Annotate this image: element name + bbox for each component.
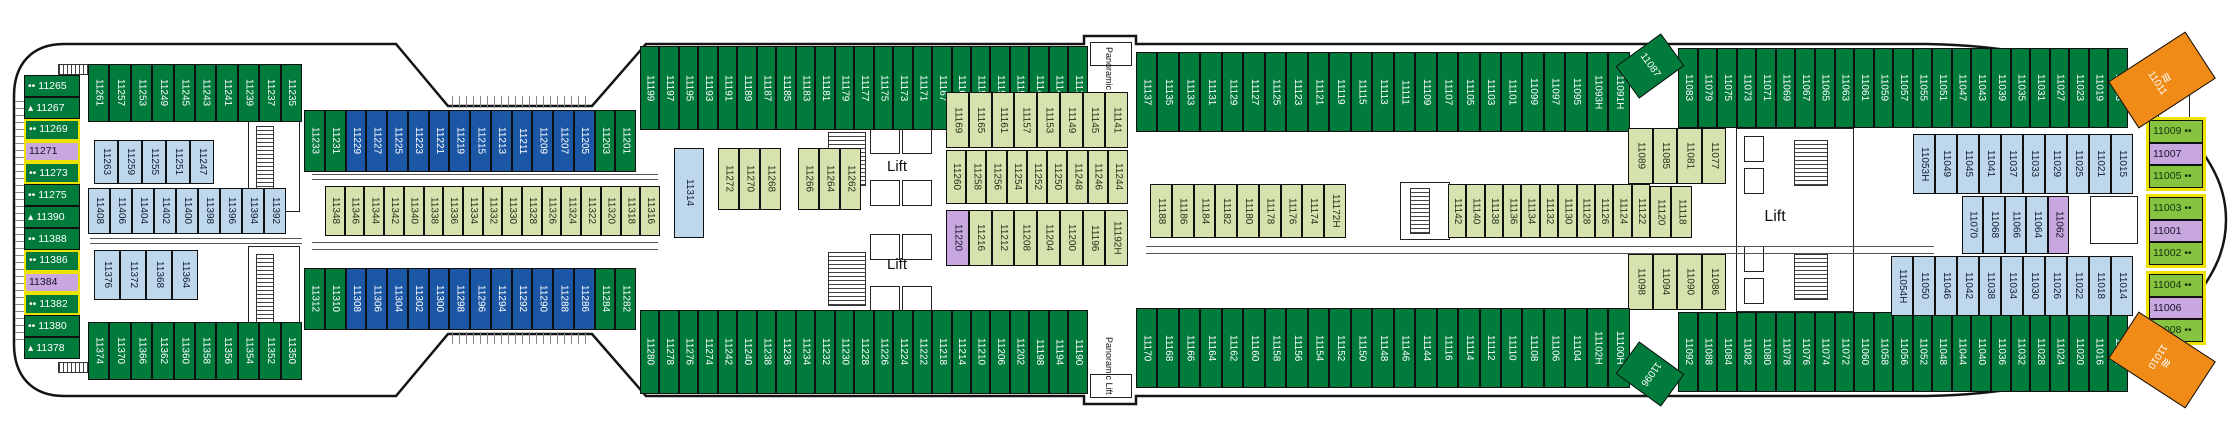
cabin-11320: 11320 bbox=[601, 186, 621, 236]
balcony-dividers bbox=[15, 100, 24, 340]
cabin-11022: 11022 bbox=[2067, 256, 2089, 316]
cabin-11135: 11135 bbox=[1157, 52, 1178, 132]
cabin-11326: 11326 bbox=[542, 186, 562, 236]
cabin-11179: 11179 bbox=[835, 46, 854, 130]
cabin-11222: 11222 bbox=[913, 310, 932, 394]
cabin-11250: 11250 bbox=[1047, 150, 1067, 204]
cabin-11127: 11127 bbox=[1243, 52, 1264, 132]
cabin-11084: 11084 bbox=[1717, 312, 1737, 392]
cabin-11231: 11231 bbox=[325, 110, 346, 172]
right-blue-upper: 11053H1104911045110411103711033110291102… bbox=[1913, 134, 2133, 194]
cabin-11244: 11244 bbox=[1108, 150, 1128, 204]
cabin-11215: 11215 bbox=[470, 110, 491, 172]
cabin-11196: 11196 bbox=[1083, 210, 1106, 266]
cabin-11272: 11272 bbox=[718, 148, 739, 210]
cabin-11160: 11160 bbox=[1243, 308, 1264, 388]
mid-olive-row-2: 1118811186111841118211180111781117611174… bbox=[1150, 184, 1346, 238]
stern-column: •• 11265▴ 11267•• 1126911271•• 11273•• 1… bbox=[24, 75, 80, 359]
cabin-11358: 11358 bbox=[195, 322, 216, 380]
cabin-11044: 11044 bbox=[1952, 312, 1972, 392]
cabin-11318: 11318 bbox=[621, 186, 641, 236]
cabin-11237: 11237 bbox=[259, 64, 280, 122]
cabin-11055: 11055 bbox=[1913, 48, 1933, 128]
right-olive-3: 1122011216112121120811204112001119611192… bbox=[946, 210, 1128, 266]
lift-car bbox=[1744, 168, 1764, 194]
cabin-11035: 11035 bbox=[2011, 48, 2031, 128]
cabin-11076: 11076 bbox=[1795, 312, 1815, 392]
cabin-11364: 11364 bbox=[172, 250, 198, 300]
cabin-11230: 11230 bbox=[835, 310, 854, 394]
cabin-11275: •• 11275 bbox=[24, 184, 80, 206]
cabin-11016: 11016 bbox=[2089, 312, 2109, 392]
cabin-11205: 11205 bbox=[574, 110, 595, 172]
cabin-11066: 11066 bbox=[2005, 196, 2026, 254]
cabin-11314: 11314 bbox=[674, 148, 704, 238]
lift-car bbox=[902, 128, 932, 154]
lift-label: Lift bbox=[1748, 206, 1802, 228]
cabin-11157: 11157 bbox=[1014, 92, 1037, 148]
corridor bbox=[1146, 246, 1934, 254]
cabin-11240: 11240 bbox=[737, 310, 756, 394]
top-row-b: 1113711135111331113111129111271112511123… bbox=[1136, 52, 1630, 132]
lift-car bbox=[1744, 278, 1764, 304]
cabin-11037: 11037 bbox=[2001, 134, 2023, 194]
stairs-midship-lower bbox=[828, 252, 866, 306]
cabin-11154: 11154 bbox=[1308, 308, 1329, 388]
lift-label: Lift bbox=[874, 156, 920, 176]
cabin-11061: 11061 bbox=[1854, 48, 1874, 128]
cabin-11146: 11146 bbox=[1394, 308, 1415, 388]
cabin-11227: 11227 bbox=[366, 110, 387, 172]
cabin-11298: 11298 bbox=[449, 268, 470, 330]
cabin-11026: 11026 bbox=[2045, 256, 2067, 316]
cabin-11370: 11370 bbox=[109, 322, 130, 380]
cabin-11264: 11264 bbox=[819, 148, 840, 210]
cabin-11101: 11101 bbox=[1501, 52, 1522, 132]
cabin-11182: 11182 bbox=[1215, 184, 1237, 238]
top-row-c: 1108311079110751107311071110691106711065… bbox=[1678, 48, 2128, 128]
cabin-11020: 11020 bbox=[2069, 312, 2089, 392]
cabin-11103: 11103 bbox=[1480, 52, 1501, 132]
cabin-11041: 11041 bbox=[1979, 134, 2001, 194]
stairs-stern-lower bbox=[256, 254, 274, 332]
bow-group-2: 11003 ••1100111002 •• bbox=[2146, 194, 2206, 268]
cabin-11198: 11198 bbox=[1029, 310, 1048, 394]
cabin-11259: 11259 bbox=[118, 140, 142, 184]
cabin-11057: 11057 bbox=[1893, 48, 1913, 128]
cabin-11308: 11308 bbox=[346, 268, 367, 330]
lift-car bbox=[1744, 136, 1764, 162]
right-blue-center: 1107011068110661106411062 bbox=[1962, 196, 2069, 254]
cabin-11080: 11080 bbox=[1756, 312, 1776, 392]
cabin-11221: 11221 bbox=[429, 110, 450, 172]
cabin-11310: 11310 bbox=[325, 268, 346, 330]
cabin-11352: 11352 bbox=[259, 322, 280, 380]
cabin-11122: 11122 bbox=[1632, 184, 1650, 238]
mid-olive-row: 1134811346113441134211340113381133611334… bbox=[325, 186, 660, 236]
cabin-11145: 11145 bbox=[1083, 92, 1106, 148]
cabin-11185: 11185 bbox=[776, 46, 795, 130]
cabin-11178: 11178 bbox=[1259, 184, 1281, 238]
cabin-11158: 11158 bbox=[1265, 308, 1286, 388]
cabin-11286: 11286 bbox=[574, 268, 595, 330]
cabin-11003: 11003 •• bbox=[2149, 197, 2203, 220]
cabin-11392: 11392 bbox=[264, 188, 286, 234]
cabin-11187: 11187 bbox=[757, 46, 776, 130]
cabin-11005: 11005 •• bbox=[2149, 165, 2203, 188]
cabin-11184: 11184 bbox=[1194, 184, 1216, 238]
cabin-11077: 11077 bbox=[1702, 128, 1727, 184]
cabin-11265: •• 11265 bbox=[24, 75, 80, 97]
cabin-11150: 11150 bbox=[1351, 308, 1372, 388]
cabin-11234: 11234 bbox=[796, 310, 815, 394]
cabin-11354: 11354 bbox=[238, 322, 259, 380]
cabin-11394: 11394 bbox=[242, 188, 264, 234]
cabin-11247: 11247 bbox=[190, 140, 214, 184]
cabin-11172H: 11172H bbox=[1324, 184, 1346, 238]
mid-olive-b: 112661126411262 bbox=[798, 148, 861, 210]
bottom-row-b: 1117011168111661116411162111601115811156… bbox=[1136, 308, 1630, 388]
cabin-11053H: 11053H bbox=[1913, 134, 1935, 194]
cabin-11195: 11195 bbox=[679, 46, 698, 130]
cabin-11174: 11174 bbox=[1302, 184, 1324, 238]
cabin-11104: 11104 bbox=[1565, 308, 1586, 388]
cabin-11029: 11029 bbox=[2045, 134, 2067, 194]
cabin-11070: 11070 bbox=[1962, 196, 1983, 254]
cabin-11065: 11065 bbox=[1815, 48, 1835, 128]
cabin-11368: 11368 bbox=[146, 250, 172, 300]
cabin-11340: 11340 bbox=[404, 186, 424, 236]
cabin-11402: 11402 bbox=[154, 188, 176, 234]
cabin-11294: 11294 bbox=[491, 268, 512, 330]
cabin-11102H: 11102H bbox=[1587, 308, 1608, 388]
cabin-11032: 11032 bbox=[2011, 312, 2031, 392]
cabin-11199: 11199 bbox=[640, 46, 659, 130]
cabin-11126: 11126 bbox=[1595, 184, 1613, 238]
cabin-11019: 11019 bbox=[2089, 48, 2109, 128]
cabin-11144: 11144 bbox=[1415, 308, 1436, 388]
lift-car bbox=[902, 286, 932, 312]
cabin-11042: 11042 bbox=[1957, 256, 1979, 316]
cabin-11052: 11052 bbox=[1913, 312, 1933, 392]
stern-deck-grate-bottom bbox=[58, 362, 92, 373]
cabin-11060: 11060 bbox=[1854, 312, 1874, 392]
cabin-11093H: 11093H bbox=[1587, 52, 1608, 132]
cabin-11086: 11086 bbox=[1702, 254, 1727, 310]
cabin-11254: 11254 bbox=[1007, 150, 1027, 204]
cabin-11258: 11258 bbox=[966, 150, 986, 204]
cabin-11048: 11048 bbox=[1932, 312, 1952, 392]
cabin-11040: 11040 bbox=[1971, 312, 1991, 392]
cabin-11290: 11290 bbox=[532, 268, 553, 330]
cabin-11004: 11004 •• bbox=[2149, 274, 2203, 297]
cabin-11220: 11220 bbox=[946, 210, 969, 266]
cabin-11396: 11396 bbox=[220, 188, 242, 234]
bow-service-room bbox=[2090, 196, 2138, 244]
cabin-11137: 11137 bbox=[1136, 52, 1157, 132]
cabin-11047: 11047 bbox=[1952, 48, 1972, 128]
cabin-11404: 11404 bbox=[132, 188, 154, 234]
cabin-11067: 11067 bbox=[1795, 48, 1815, 128]
cabin-11210: 11210 bbox=[971, 310, 990, 394]
cabin-11074: 11074 bbox=[1815, 312, 1835, 392]
cabin-11176: 11176 bbox=[1281, 184, 1303, 238]
cabin-11036: 11036 bbox=[1991, 312, 2011, 392]
cabin-11031: 11031 bbox=[2030, 48, 2050, 128]
cabin-11390: ▴ 11390 bbox=[24, 206, 80, 228]
cabin-11374: 11374 bbox=[88, 322, 109, 380]
cabin-11113: 11113 bbox=[1372, 52, 1393, 132]
cabin-11260: 11260 bbox=[946, 150, 966, 204]
cabin-11062: 11062 bbox=[2048, 196, 2069, 254]
cabin-11181: 11181 bbox=[815, 46, 834, 130]
bottom-inset-row: 1131211310113081130611304113021130011298… bbox=[304, 268, 636, 330]
cabin-11162: 11162 bbox=[1222, 308, 1243, 388]
cabin-11350: 11350 bbox=[281, 322, 302, 380]
cabin-11266: 11266 bbox=[798, 148, 819, 210]
lift-car bbox=[870, 180, 900, 206]
cabin-11238: 11238 bbox=[757, 310, 776, 394]
cabin-11015: 11015 bbox=[2111, 134, 2133, 194]
cabin-11183: 11183 bbox=[796, 46, 815, 130]
cabin-11007: 11007 bbox=[2149, 143, 2203, 166]
cabin-11282: 11282 bbox=[615, 268, 636, 330]
cabin-11348: 11348 bbox=[325, 186, 345, 236]
cabin-11056: 11056 bbox=[1893, 312, 1913, 392]
cabin-11180: 11180 bbox=[1237, 184, 1259, 238]
cabin-11038: 11038 bbox=[1979, 256, 2001, 316]
cabin-11218: 11218 bbox=[932, 310, 951, 394]
cabin-11094: 11094 bbox=[1653, 254, 1678, 310]
cabin-11342: 11342 bbox=[384, 186, 404, 236]
cabin-11216: 11216 bbox=[969, 210, 992, 266]
cabin-11098: 11098 bbox=[1628, 254, 1653, 310]
cabin-11356: 11356 bbox=[216, 322, 237, 380]
cabin-11346: 11346 bbox=[345, 186, 365, 236]
stairs-mid bbox=[1410, 188, 1430, 234]
lift-olive-top: 11089110851108111077 bbox=[1628, 128, 1726, 184]
cabin-11212: 11212 bbox=[992, 210, 1015, 266]
cabin-11239: 11239 bbox=[238, 64, 259, 122]
cabin-11274: 11274 bbox=[698, 310, 717, 394]
cabin-11006: 11006 bbox=[2149, 297, 2203, 320]
right-blue-lower: 11054H1105011046110421103811034110301102… bbox=[1891, 256, 2133, 316]
cabin-11278: 11278 bbox=[659, 310, 678, 394]
cabin-11114: 11114 bbox=[1458, 308, 1479, 388]
cabin-11253: 11253 bbox=[131, 64, 152, 122]
cabin-11068: 11068 bbox=[1983, 196, 2004, 254]
cabin-11207: 11207 bbox=[553, 110, 574, 172]
panoramic-lift-label: Panoramic Lift bbox=[1087, 336, 1131, 396]
cabin-11226: 11226 bbox=[874, 310, 893, 394]
cabin-11116: 11116 bbox=[1437, 308, 1458, 388]
cabin-11362: 11362 bbox=[152, 322, 173, 380]
cabin-11156: 11156 bbox=[1286, 308, 1307, 388]
cabin-11233: 11233 bbox=[304, 110, 325, 172]
cabin-11169: 11169 bbox=[946, 92, 969, 148]
cabin-11141: 11141 bbox=[1105, 92, 1128, 148]
cabin-11248: 11248 bbox=[1067, 150, 1087, 204]
cabin-11025: 11025 bbox=[2067, 134, 2089, 194]
cabin-11132: 11132 bbox=[1540, 184, 1558, 238]
cabin-11268: 11268 bbox=[760, 148, 781, 210]
cabin-11089: 11089 bbox=[1628, 128, 1653, 184]
corridor bbox=[312, 174, 658, 180]
top-inset-row: 1123311231112291122711225112231122111219… bbox=[304, 110, 636, 172]
mid-olive-a: 112721127011268 bbox=[718, 148, 781, 210]
cabin-11115: 11115 bbox=[1351, 52, 1372, 132]
right-olive-1: 1116911165111611115711153111491114511141 bbox=[946, 92, 1128, 148]
cabin-11202: 11202 bbox=[1010, 310, 1029, 394]
cabin-11273: •• 11273 bbox=[24, 162, 80, 184]
cabin-11120: 11120 bbox=[1650, 186, 1671, 238]
cabin-11134: 11134 bbox=[1521, 184, 1539, 238]
cabin-11001: 11001 bbox=[2149, 220, 2203, 243]
cabin-11209: 11209 bbox=[532, 110, 553, 172]
cabin-11027: 11027 bbox=[2050, 48, 2070, 128]
cabin-11400: 11400 bbox=[176, 188, 198, 234]
cabin-11316: 11316 bbox=[640, 186, 660, 236]
cabin-11224: 11224 bbox=[893, 310, 912, 394]
cabin-11204: 11204 bbox=[1037, 210, 1060, 266]
cabin-11054H: 11054H bbox=[1891, 256, 1913, 316]
cabin-11292: 11292 bbox=[512, 268, 533, 330]
cabin-11124: 11124 bbox=[1613, 184, 1631, 238]
cabin-11186: 11186 bbox=[1172, 184, 1194, 238]
cabin-11296: 11296 bbox=[470, 268, 491, 330]
cabin-11063: 11063 bbox=[1835, 48, 1855, 128]
cabin-11119: 11119 bbox=[1329, 52, 1350, 132]
cabin-11245: 11245 bbox=[174, 64, 195, 122]
cabin-11075: 11075 bbox=[1717, 48, 1737, 128]
cabin-11360: 11360 bbox=[174, 322, 195, 380]
cabin-11408: 11408 bbox=[88, 188, 110, 234]
cabin-11152: 11152 bbox=[1329, 308, 1350, 388]
deck-plan: •• 11265▴ 11267•• 1126911271•• 11273•• 1… bbox=[0, 0, 2232, 440]
cabin-11228: 11228 bbox=[854, 310, 873, 394]
cabin-11177: 11177 bbox=[854, 46, 873, 130]
cabin-11232: 11232 bbox=[815, 310, 834, 394]
cabin-11314-block: 11314 bbox=[674, 148, 704, 238]
cabin-11242: 11242 bbox=[718, 310, 737, 394]
cabin-11246: 11246 bbox=[1088, 150, 1108, 204]
cabin-11173: 11173 bbox=[893, 46, 912, 130]
cabin-11276: 11276 bbox=[679, 310, 698, 394]
cabin-11334: 11334 bbox=[463, 186, 483, 236]
cabin-11332: 11332 bbox=[483, 186, 503, 236]
cabin-11002: 11002 •• bbox=[2149, 242, 2203, 265]
stern-bottom-row: 1137411370113661136211360113581135611354… bbox=[88, 322, 302, 380]
cabin-11261: 11261 bbox=[88, 64, 109, 122]
cabin-11109: 11109 bbox=[1415, 52, 1436, 132]
cabin-11197: 11197 bbox=[659, 46, 678, 130]
cabin-11039: 11039 bbox=[1991, 48, 2011, 128]
cabin-11267: ▴ 11267 bbox=[24, 97, 80, 119]
cabin-11121: 11121 bbox=[1308, 52, 1329, 132]
cabin-11193: 11193 bbox=[698, 46, 717, 130]
cabin-11306: 11306 bbox=[366, 268, 387, 330]
cabin-11105: 11105 bbox=[1458, 52, 1479, 132]
cabin-11092: 11092 bbox=[1678, 312, 1698, 392]
cabin-11064: 11064 bbox=[2026, 196, 2047, 254]
cabin-11194: 11194 bbox=[1049, 310, 1068, 394]
cabin-11376: 11376 bbox=[94, 250, 120, 300]
cabin-11191: 11191 bbox=[718, 46, 737, 130]
cabin-11129: 11129 bbox=[1222, 52, 1243, 132]
lower-blue-row: 11376113721136811364 bbox=[94, 250, 198, 300]
cabin-11130: 11130 bbox=[1558, 184, 1576, 238]
cabin-11206: 11206 bbox=[990, 310, 1009, 394]
cabin-11336: 11336 bbox=[443, 186, 463, 236]
cabin-11338: 11338 bbox=[424, 186, 444, 236]
cabin-11079: 11079 bbox=[1698, 48, 1718, 128]
cabin-11236: 11236 bbox=[776, 310, 795, 394]
cabin-11241: 11241 bbox=[216, 64, 237, 122]
cabin-11118: 11118 bbox=[1671, 186, 1692, 238]
cabin-11168: 11168 bbox=[1157, 308, 1178, 388]
cabin-11406: 11406 bbox=[110, 188, 132, 234]
cabin-11107: 11107 bbox=[1437, 52, 1458, 132]
cabin-11263: 11263 bbox=[94, 140, 118, 184]
cabin-11082: 11082 bbox=[1737, 312, 1757, 392]
cabin-11108: 11108 bbox=[1522, 308, 1543, 388]
cabin-11149: 11149 bbox=[1060, 92, 1083, 148]
cabin-11235: 11235 bbox=[281, 64, 302, 122]
cabin-11043: 11043 bbox=[1971, 48, 1991, 128]
cabin-11189: 11189 bbox=[737, 46, 756, 130]
cabin-11045: 11045 bbox=[1957, 134, 1979, 194]
stairs-forward-upper bbox=[1794, 140, 1828, 186]
cabin-11262: 11262 bbox=[840, 148, 861, 210]
cabin-11112: 11112 bbox=[1480, 308, 1501, 388]
cabin-11014: 11014 bbox=[2111, 256, 2133, 316]
cabin-11142: 11142 bbox=[1448, 184, 1466, 238]
mid-olive-row-4: 1112011118 bbox=[1650, 186, 1692, 238]
cabin-11072: 11072 bbox=[1835, 312, 1855, 392]
cabin-11257: 11257 bbox=[109, 64, 130, 122]
cabin-11344: 11344 bbox=[364, 186, 384, 236]
cabin-11123: 11123 bbox=[1286, 52, 1307, 132]
cabin-11378: ▴ 11378 bbox=[24, 337, 80, 359]
upper-blue-row: 1126311259112551125111247 bbox=[94, 140, 214, 184]
cabin-11192H: 11192H bbox=[1105, 210, 1128, 266]
cabin-11110: 11110 bbox=[1501, 308, 1522, 388]
cabin-11269: •• 11269 bbox=[24, 119, 80, 141]
cabin-11270: 11270 bbox=[739, 148, 760, 210]
cabin-11164: 11164 bbox=[1200, 308, 1221, 388]
lift-car bbox=[870, 286, 900, 312]
mid-olive-row-3: 1114211140111381113611134111321113011128… bbox=[1448, 184, 1650, 238]
cabin-11249: 11249 bbox=[152, 64, 173, 122]
cabin-11023: 11023 bbox=[2069, 48, 2089, 128]
cabin-11284: 11284 bbox=[595, 268, 616, 330]
cabin-11138: 11138 bbox=[1485, 184, 1503, 238]
stern-deck-grate-top bbox=[58, 64, 92, 75]
cabin-11133: 11133 bbox=[1179, 52, 1200, 132]
cabin-11384: 11384 bbox=[24, 272, 80, 294]
cabin-11201: 11201 bbox=[615, 110, 636, 172]
cabin-11288: 11288 bbox=[553, 268, 574, 330]
cabin-11030: 11030 bbox=[2023, 256, 2045, 316]
cabin-11203: 11203 bbox=[595, 110, 616, 172]
cabin-11366: 11366 bbox=[131, 322, 152, 380]
cabin-11165: 11165 bbox=[969, 92, 992, 148]
cabin-11211: 11211 bbox=[512, 110, 533, 172]
cabin-11229: 11229 bbox=[346, 110, 367, 172]
cabin-11208: 11208 bbox=[1014, 210, 1037, 266]
cabin-11170: 11170 bbox=[1136, 308, 1157, 388]
cabin-11280: 11280 bbox=[640, 310, 659, 394]
